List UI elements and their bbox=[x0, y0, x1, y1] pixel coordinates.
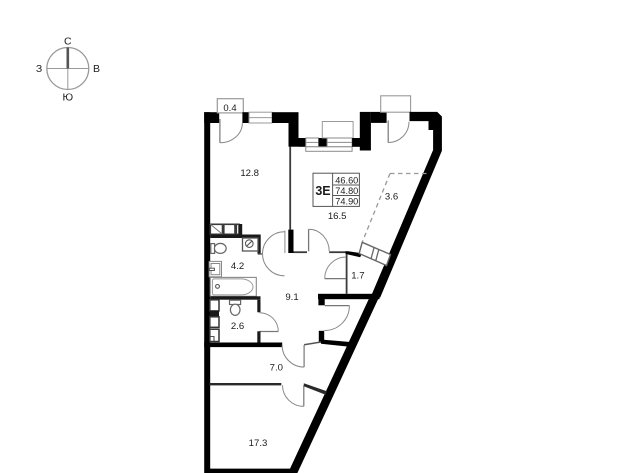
svg-text:17.3: 17.3 bbox=[249, 438, 268, 449]
svg-text:7.0: 7.0 bbox=[270, 363, 283, 374]
svg-text:2.6: 2.6 bbox=[231, 321, 244, 332]
svg-text:9.1: 9.1 bbox=[285, 292, 298, 303]
svg-text:1.7: 1.7 bbox=[351, 270, 364, 281]
svg-text:3Е: 3Е bbox=[315, 184, 330, 198]
svg-text:В: В bbox=[93, 63, 100, 75]
svg-text:0.4: 0.4 bbox=[223, 103, 236, 114]
svg-text:16.5: 16.5 bbox=[328, 211, 347, 222]
svg-text:З: З bbox=[36, 63, 42, 75]
svg-text:46.60: 46.60 bbox=[335, 176, 358, 186]
svg-text:74.90: 74.90 bbox=[335, 197, 358, 207]
svg-text:3.6: 3.6 bbox=[385, 191, 398, 202]
svg-text:12.8: 12.8 bbox=[240, 168, 259, 179]
svg-text:4.2: 4.2 bbox=[231, 261, 244, 272]
svg-text:74.80: 74.80 bbox=[335, 186, 358, 196]
svg-text:Ю: Ю bbox=[62, 92, 73, 104]
svg-text:С: С bbox=[64, 36, 72, 48]
